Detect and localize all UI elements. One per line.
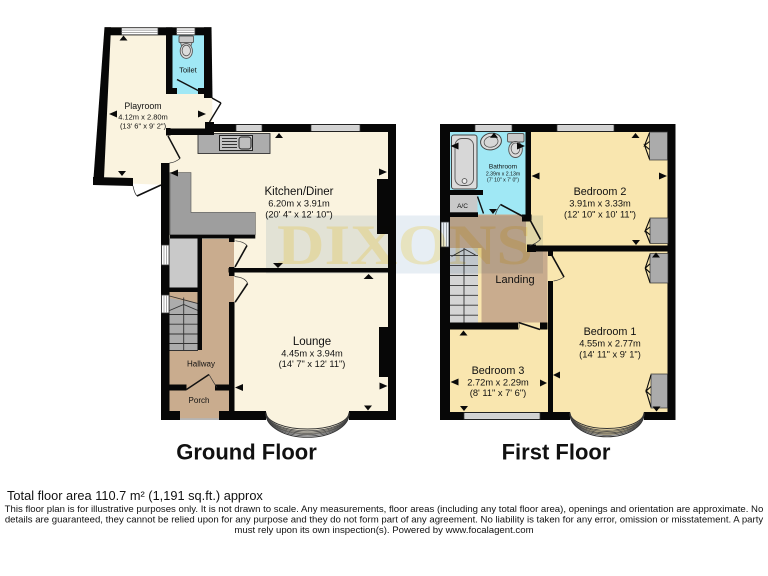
svg-text:Playroom: Playroom [124,101,161,111]
svg-text:(14' 7" x 12' 11"): (14' 7" x 12' 11") [279,359,346,369]
svg-text:(12' 10" x 10' 11"): (12' 10" x 10' 11") [564,210,636,220]
svg-text:Ground Floor: Ground Floor [176,440,317,465]
svg-text:6.20m x 3.91m: 6.20m x 3.91m [268,199,330,209]
svg-text:Toilet: Toilet [179,66,197,75]
svg-text:2.72m x 2.29m: 2.72m x 2.29m [467,378,529,388]
svg-text:(14' 11" x 9' 1"): (14' 11" x 9' 1") [579,350,641,360]
svg-text:DIXONS: DIXONS [277,214,533,277]
svg-text:(7' 10" x 7' 0"): (7' 10" x 7' 0") [487,178,519,184]
svg-text:4.45m x 3.94m: 4.45m x 3.94m [281,349,343,359]
svg-text:Bedroom 2: Bedroom 2 [574,186,627,198]
svg-text:must rely upon its own inspect: must rely upon its own inspection(s). Po… [234,525,533,536]
svg-text:A/C: A/C [457,203,468,210]
svg-text:details are guaranteed, they c: details are guaranteed, they cannot be r… [5,515,764,526]
svg-text:Bedroom 1: Bedroom 1 [584,326,637,338]
svg-text:Total floor area 110.7 m² (1,1: Total floor area 110.7 m² (1,191 sq.ft.)… [7,488,263,503]
svg-text:Bedroom 3: Bedroom 3 [472,365,525,377]
svg-text:Kitchen/Diner: Kitchen/Diner [264,186,333,198]
svg-text:(13' 6" x 9' 2"): (13' 6" x 9' 2") [120,122,167,131]
svg-text:Bathroom: Bathroom [489,164,517,171]
svg-text:4.55m x 2.77m: 4.55m x 2.77m [579,339,641,349]
svg-text:3.91m x 3.33m: 3.91m x 3.33m [569,199,631,209]
svg-text:First Floor: First Floor [502,440,611,465]
svg-text:4.12m x 2.80m: 4.12m x 2.80m [118,113,168,122]
svg-text:Lounge: Lounge [293,336,331,348]
svg-text:(8' 11" x 7' 6"): (8' 11" x 7' 6") [470,388,527,398]
svg-text:Hallway: Hallway [187,360,215,369]
svg-text:This floor plan is for illustr: This floor plan is for illustrative purp… [5,504,764,515]
svg-text:Porch: Porch [189,396,210,405]
